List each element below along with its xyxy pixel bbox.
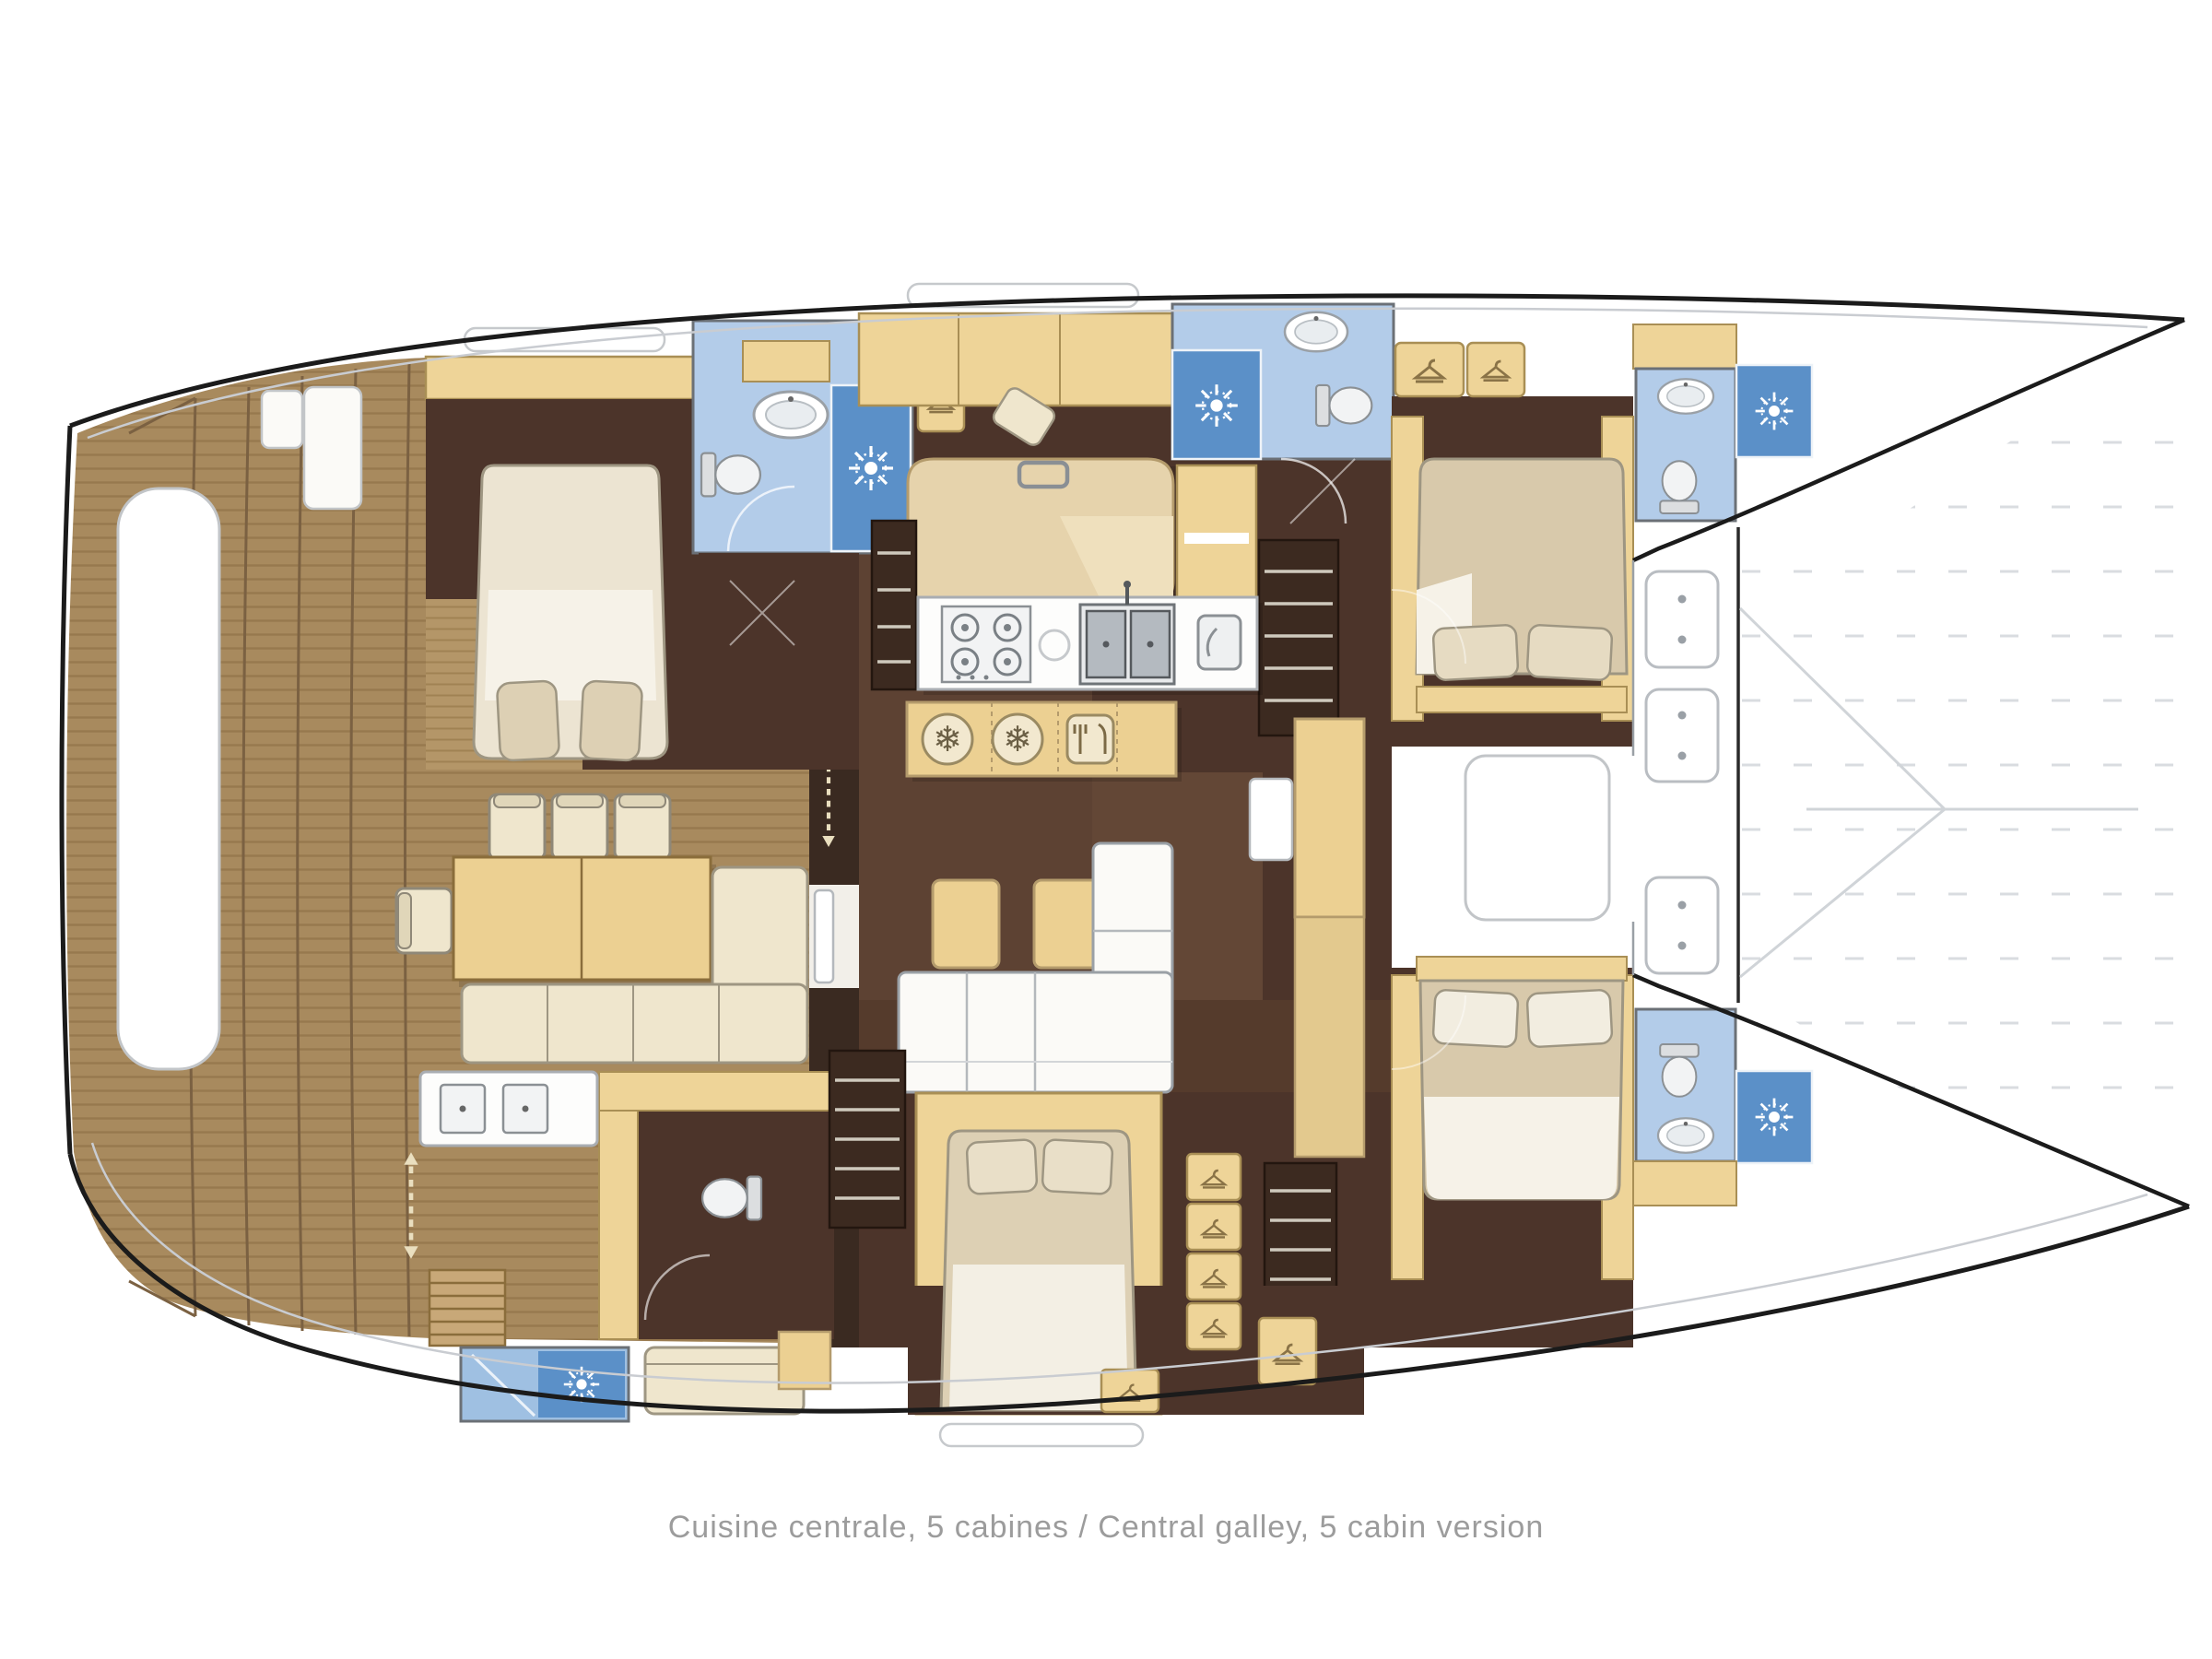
galley-drawers [872, 521, 916, 689]
pillow [1527, 990, 1613, 1048]
sliding-door [815, 890, 833, 982]
wardrobe [1467, 343, 1524, 396]
trampoline [1742, 442, 2175, 1088]
snowflake-fridge-icon: ❄ [933, 721, 962, 759]
twin-sink-vanity [420, 1072, 597, 1146]
cabinet-detail [1184, 533, 1249, 544]
cutlery-icon [1067, 715, 1113, 763]
galley-island: ❄ ❄ [907, 702, 1182, 782]
deck-hatch-icon [1646, 689, 1718, 782]
pillow [967, 1139, 1038, 1194]
counter-appliance [1198, 616, 1241, 669]
double-bed [1417, 459, 1627, 680]
tall-cabinet [1295, 719, 1364, 917]
catamaran-floor-plan: ❄ ❄ [0, 0, 2212, 1659]
bath-shelf [1633, 1161, 1736, 1206]
cabinet-run [1295, 917, 1364, 1157]
deck-hatch-icon [1646, 571, 1718, 667]
side-table [779, 1332, 830, 1389]
pouf [933, 880, 999, 968]
sink-icon [1658, 1118, 1713, 1153]
pillow [580, 680, 642, 760]
cockpit-chair [489, 794, 545, 859]
toilet-icon [1660, 1044, 1699, 1097]
hull-corridor-floor [699, 553, 859, 770]
cabinet-band [1392, 975, 1423, 1279]
bed-foot-band [1417, 687, 1627, 712]
wardrobe [1395, 343, 1464, 396]
shower-sun-icon [1195, 384, 1238, 427]
forward-seat-locker [1465, 756, 1609, 920]
forward-cabin-port [1392, 343, 1633, 747]
cockpit-chair [615, 794, 670, 859]
bed-head-band [1417, 957, 1627, 981]
transom-locker [262, 391, 302, 448]
transom-locker [304, 387, 361, 509]
stairs-to-port-hull [1259, 540, 1338, 735]
starboard-bow-bathroom [1633, 1009, 1812, 1206]
pillow [1042, 1139, 1113, 1194]
double-bed [941, 1131, 1136, 1410]
shower-sun-icon [849, 446, 893, 490]
cabinet-door [1250, 779, 1292, 860]
port-bow-bathroom [1633, 324, 1812, 521]
sink-icon [1658, 379, 1713, 414]
floor-plan-page: ❄ ❄ [0, 0, 2212, 1659]
sink-icon [1285, 312, 1347, 352]
pillow [497, 680, 559, 760]
cabinet-band [426, 357, 693, 399]
deck-hatch-icon [940, 1424, 1143, 1446]
toilet-icon [701, 453, 760, 497]
stove-4-burner [942, 606, 1030, 682]
bath-shelf [1633, 324, 1736, 369]
cabinet-band [599, 1072, 834, 1111]
toilet-icon [1660, 461, 1699, 513]
shower-sun-icon [1756, 1099, 1794, 1136]
toilet-icon [702, 1177, 761, 1220]
deck-hatch-icon [1646, 877, 1718, 973]
toilet-icon [1316, 385, 1371, 426]
shower-sun-icon [1756, 393, 1794, 430]
plan-caption: Cuisine centrale, 5 cabines / Central ga… [0, 1510, 2212, 1546]
forward-cabin-starboard [1392, 957, 1633, 1347]
cockpit-chair [396, 888, 452, 953]
stairs-to-starboard-hull [829, 1051, 905, 1228]
pouf [1034, 880, 1100, 968]
galley-counter [918, 581, 1263, 695]
cabinet-band [599, 1111, 638, 1339]
cockpit-bench-seat [118, 488, 219, 1069]
snowflake-fridge-icon: ❄ [1003, 721, 1032, 759]
double-bed [474, 465, 667, 761]
sink-icon [754, 392, 828, 438]
transom-steps [429, 1270, 505, 1346]
bath-shelf [743, 341, 829, 382]
pillow [1433, 625, 1519, 681]
cockpit-chair [552, 794, 607, 859]
bowsprit-lines [1740, 608, 2138, 977]
double-bed [1420, 981, 1623, 1199]
pillow [1433, 990, 1519, 1048]
pillow [1527, 625, 1613, 681]
